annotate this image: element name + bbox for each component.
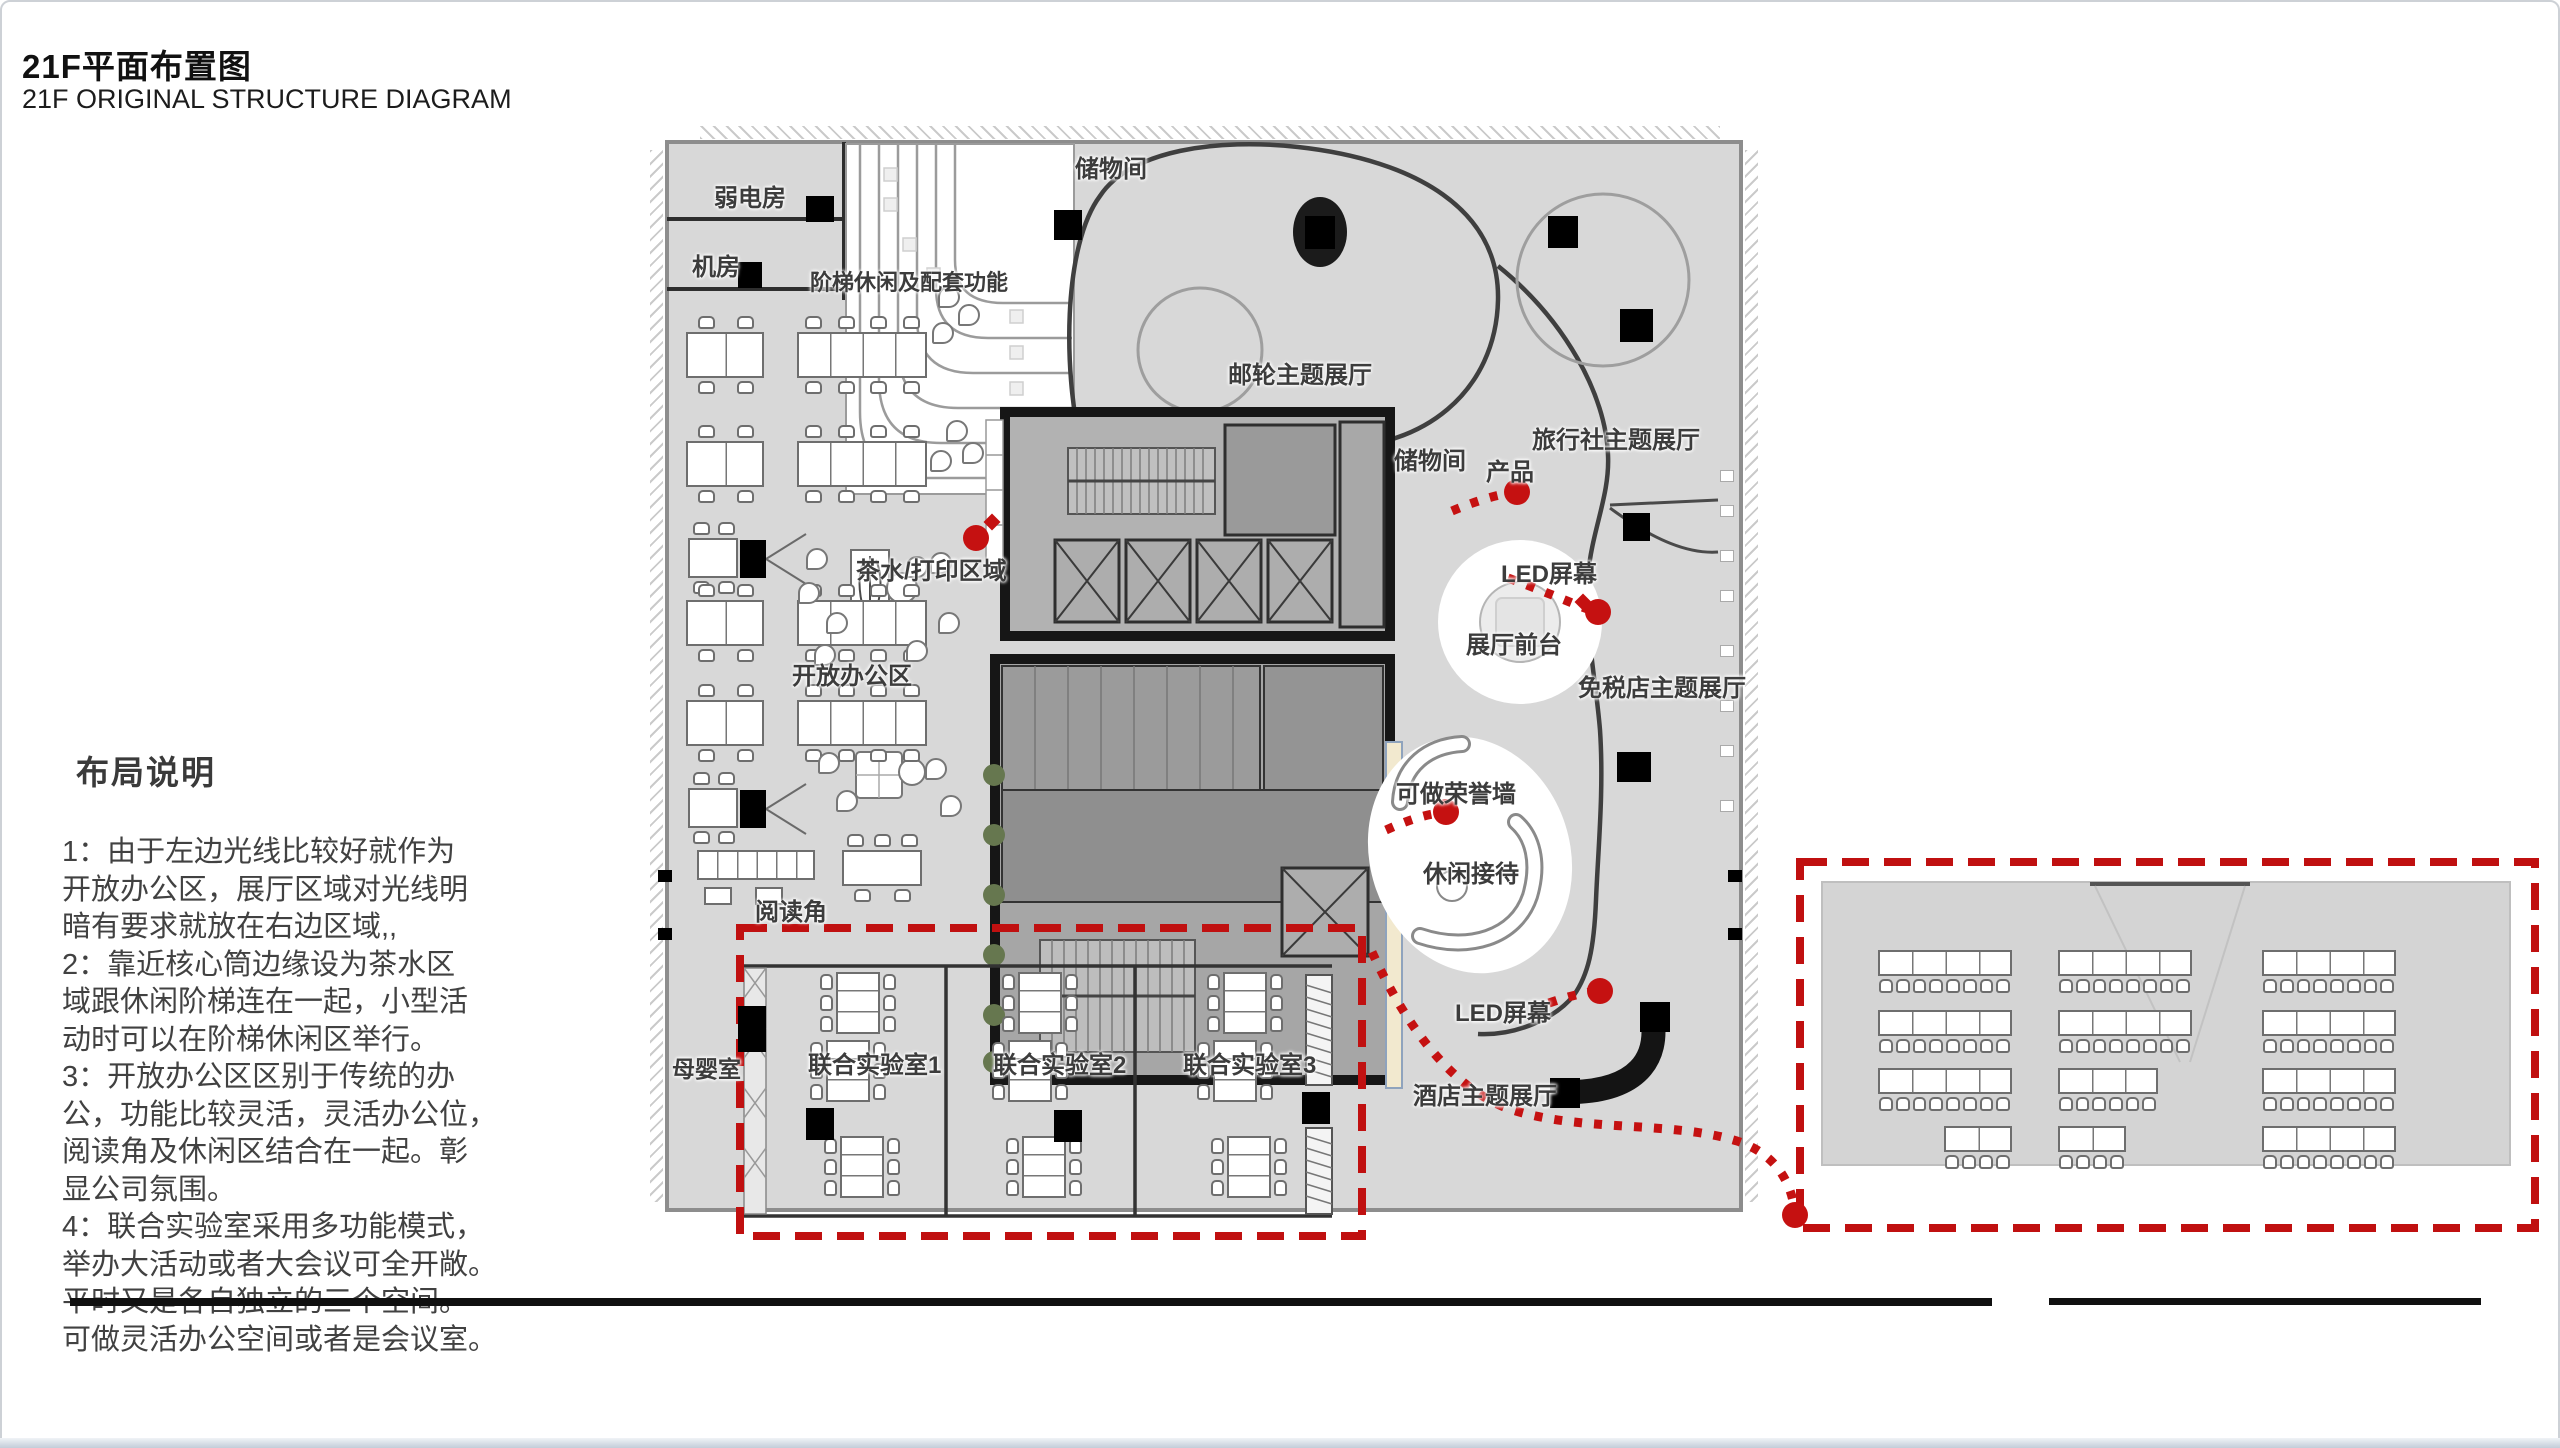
chair	[1929, 1039, 1943, 1053]
column-block	[1302, 1092, 1330, 1124]
column-block	[1054, 210, 1082, 240]
chair	[1980, 1097, 1994, 1111]
stool-seat	[962, 442, 984, 464]
chair	[1879, 1097, 1893, 1111]
chair	[2143, 979, 2157, 993]
zone-label-honor-wall: 可做荣誉墙	[1396, 774, 1516, 809]
notes-body: 1：由于左边光线比较好就作为开放办公区，展厅区域对光线明暗有要求就放在右边区域,…	[62, 834, 542, 1359]
notes-line: 3：开放办公区区别于传统的办	[62, 1059, 542, 1097]
chair	[2347, 1097, 2361, 1111]
zone-label-stair-leisure: 阶梯休闲及配套功能	[810, 265, 1008, 297]
notes-line: 开放办公区，展厅区域对光线明	[62, 872, 542, 910]
chair	[805, 490, 822, 503]
chair	[698, 749, 715, 762]
zone-label-storage-mid: 储物间	[1394, 441, 1466, 476]
chair	[2160, 1039, 2174, 1053]
office-desk	[842, 850, 922, 886]
chair	[2093, 1039, 2107, 1053]
chair	[2330, 1039, 2344, 1053]
column-block	[1728, 928, 1742, 940]
chair	[2059, 979, 2073, 993]
chair	[1002, 995, 1015, 1011]
chair	[883, 1016, 896, 1032]
column-block	[1728, 870, 1742, 882]
window-slit	[1720, 470, 1734, 482]
office-desk	[688, 788, 738, 828]
chair	[2364, 1097, 2378, 1111]
window-bottom-bar	[0, 1438, 2560, 1448]
notes-line: 举办大活动或者大会议可全开敞。	[62, 1247, 542, 1285]
stool-seat	[932, 322, 954, 344]
layout-notes: 布局说明 1：由于左边光线比较好就作为开放办公区，展厅区域对光线明暗有要求就放在…	[62, 746, 542, 1359]
chair	[1963, 979, 1977, 993]
chair	[693, 522, 710, 535]
chair	[894, 889, 911, 902]
chair	[2297, 1097, 2311, 1111]
window-slit	[1720, 645, 1734, 657]
office-desk	[686, 441, 764, 487]
chair	[838, 584, 855, 597]
stool-seat	[925, 758, 947, 780]
chair	[1996, 1155, 2010, 1169]
chair	[718, 831, 735, 844]
window-slit	[1720, 550, 1734, 562]
stool-seat	[818, 752, 840, 774]
classroom-table	[1878, 1068, 2012, 1094]
zone-label-hall-reception: 展厅前台	[1466, 625, 1562, 660]
stool-seat	[930, 450, 952, 472]
chair	[2347, 1155, 2361, 1169]
chair	[874, 834, 891, 847]
chair	[1946, 1097, 1960, 1111]
chair	[903, 381, 920, 394]
chair	[737, 316, 754, 329]
chair	[1913, 1097, 1927, 1111]
notes-heading: 布局说明	[76, 746, 542, 794]
classroom-table	[1944, 1126, 2012, 1152]
chair	[2109, 1097, 2123, 1111]
chair	[2176, 979, 2190, 993]
zone-label-weak-power-room: 弱电房	[714, 178, 786, 213]
stool-seat	[946, 420, 968, 442]
column-block	[738, 262, 762, 288]
office-desk	[797, 600, 927, 646]
chair	[1945, 1155, 1959, 1169]
chair	[737, 381, 754, 394]
chair	[854, 889, 871, 902]
chair	[718, 522, 735, 535]
red-marker-dot	[963, 525, 989, 551]
office-desk	[686, 700, 764, 746]
chair	[870, 425, 887, 438]
chair	[2263, 1039, 2277, 1053]
chair	[1980, 979, 1994, 993]
chair	[2176, 1039, 2190, 1053]
chair	[1065, 995, 1078, 1011]
office-desk	[686, 332, 764, 378]
chair	[1896, 1039, 1910, 1053]
chair	[1065, 974, 1078, 990]
column-block	[1054, 1110, 1082, 1142]
chair	[824, 1159, 837, 1175]
chair	[2313, 1097, 2327, 1111]
zone-label-leisure-reception: 休闲接待	[1423, 854, 1519, 889]
chair	[1962, 1155, 1976, 1169]
notes-line: 2：靠近核心筒边缘设为茶水区	[62, 947, 542, 985]
lab-table	[1223, 972, 1267, 1034]
office-desk	[797, 700, 927, 746]
lab-table	[1022, 1136, 1066, 1198]
chair	[737, 649, 754, 662]
chair	[1002, 1016, 1015, 1032]
chair	[1197, 1084, 1210, 1100]
chair	[2142, 1097, 2156, 1111]
notes-line: 暗有要求就放在右边区域,,	[62, 909, 542, 947]
notes-line: 阅读角及休闲区结合在一起。彰	[62, 1134, 542, 1172]
chair	[1207, 995, 1220, 1011]
chair	[820, 1016, 833, 1032]
chair	[698, 425, 715, 438]
chair	[1979, 1155, 1993, 1169]
office-desk	[697, 850, 815, 880]
window-slit	[1720, 745, 1734, 757]
chair	[2313, 979, 2327, 993]
chair	[737, 584, 754, 597]
notes-line: 4：联合实验室采用多功能模式，	[62, 1209, 542, 1247]
page-subtitle: 21F ORIGINAL STRUCTURE DIAGRAM	[22, 84, 512, 115]
stool-seat	[958, 304, 980, 326]
notes-line: 公，功能比较灵活，灵活办公位，	[62, 1097, 542, 1135]
chair	[2263, 979, 2277, 993]
chair	[903, 490, 920, 503]
chair	[718, 581, 735, 594]
chair	[903, 749, 920, 762]
footer-rule-left	[70, 1298, 1992, 1306]
chair	[1913, 1039, 1927, 1053]
chair	[1207, 974, 1220, 990]
chair	[1006, 1180, 1019, 1196]
stool-seat	[836, 790, 858, 812]
chair	[2092, 1097, 2106, 1111]
chair	[887, 1180, 900, 1196]
chair	[805, 425, 822, 438]
chair	[2313, 1039, 2327, 1053]
chair	[2263, 1097, 2277, 1111]
chair	[698, 649, 715, 662]
notes-line: 1：由于左边光线比较好就作为	[62, 834, 542, 872]
chair	[824, 1138, 837, 1154]
window-slit	[1720, 505, 1734, 517]
column-block	[1548, 216, 1578, 248]
chair	[2297, 1039, 2311, 1053]
chair	[698, 684, 715, 697]
zone-label-reading-corner: 阅读角	[755, 892, 827, 927]
chair	[2297, 979, 2311, 993]
chair	[2364, 979, 2378, 993]
chair	[2380, 1155, 2394, 1169]
chair	[2297, 1155, 2311, 1169]
lab-table	[1227, 1136, 1271, 1198]
chair	[847, 834, 864, 847]
zone-label-storage-top: 储物间	[1075, 149, 1147, 184]
chair	[2380, 1039, 2394, 1053]
zone-label-tea-print: 茶水/打印区域	[856, 551, 1007, 586]
chair	[1996, 1039, 2010, 1053]
office-desk	[686, 600, 764, 646]
chair	[737, 749, 754, 762]
chair	[2364, 1155, 2378, 1169]
stool-seat	[938, 612, 960, 634]
chair	[1270, 1016, 1283, 1032]
notes-line: 可做灵活办公空间或者是会议室。	[62, 1322, 542, 1360]
zone-label-product: 产品	[1486, 452, 1534, 487]
chair	[870, 490, 887, 503]
chair	[2380, 1097, 2394, 1111]
chair	[2280, 1097, 2294, 1111]
column-block	[658, 870, 672, 882]
chair	[2160, 979, 2174, 993]
chair	[737, 684, 754, 697]
chair	[737, 490, 754, 503]
notes-line: 域跟休闲阶梯连在一起，小型活	[62, 984, 542, 1022]
chair	[1069, 1180, 1082, 1196]
zone-label-machine-room: 机房	[692, 247, 740, 282]
chair	[1069, 1159, 1082, 1175]
zone-label-led-screen-2: LED屏幕	[1455, 993, 1551, 1028]
footer-rule-right	[2049, 1298, 2481, 1305]
zone-label-led-screen-1: LED屏幕	[1501, 554, 1597, 589]
chair	[1207, 1016, 1220, 1032]
chair	[1896, 1097, 1910, 1111]
window-slit	[1720, 800, 1734, 812]
zone-label-joint-lab-3: 联合实验室3	[1183, 1045, 1316, 1080]
office-desk	[688, 538, 738, 578]
hatch-right	[1745, 150, 1758, 1202]
chair	[1270, 995, 1283, 1011]
chair	[870, 749, 887, 762]
chair	[1879, 1039, 1893, 1053]
window-slit	[1720, 590, 1734, 602]
page-title: 21F平面布置图	[22, 40, 252, 88]
lab-table	[836, 972, 880, 1034]
chair	[873, 1084, 886, 1100]
red-marker-dot	[1782, 1202, 1808, 1228]
chair	[2059, 1097, 2073, 1111]
chair	[1211, 1138, 1224, 1154]
stool-seat	[806, 548, 828, 570]
chair	[2347, 1039, 2361, 1053]
chair	[2263, 1155, 2277, 1169]
chair	[1946, 979, 1960, 993]
chair	[2076, 979, 2090, 993]
chair	[1274, 1159, 1287, 1175]
chair	[2076, 1039, 2090, 1053]
chair	[698, 584, 715, 597]
chair	[1929, 1097, 1943, 1111]
chair	[2126, 1097, 2140, 1111]
chair	[903, 425, 920, 438]
chair	[805, 316, 822, 329]
chair	[1963, 1039, 1977, 1053]
chair	[838, 749, 855, 762]
chair	[693, 772, 710, 785]
classroom-table	[2262, 950, 2396, 976]
chair	[2380, 979, 2394, 993]
chair	[887, 1138, 900, 1154]
chair	[1006, 1159, 1019, 1175]
red-marker-dot	[1587, 978, 1613, 1004]
office-desk	[797, 332, 927, 378]
chair	[698, 381, 715, 394]
stool-seat	[798, 582, 820, 604]
chair	[2109, 979, 2123, 993]
zone-label-cruise-hall: 邮轮主题展厅	[1228, 355, 1372, 390]
chair	[2330, 979, 2344, 993]
display-board	[740, 790, 766, 828]
chair	[1006, 1138, 1019, 1154]
display-board	[740, 540, 766, 578]
chair	[887, 1159, 900, 1175]
chair	[1270, 974, 1283, 990]
chair	[810, 1084, 823, 1100]
chair	[2280, 1039, 2294, 1053]
chair	[2126, 979, 2140, 993]
chair	[2330, 1097, 2344, 1111]
chair	[2110, 1155, 2124, 1169]
column-block	[658, 928, 672, 940]
chair	[1980, 1039, 1994, 1053]
column-block	[1617, 752, 1651, 782]
chair	[838, 381, 855, 394]
chair	[698, 490, 715, 503]
stool-seat	[826, 612, 848, 634]
classroom-table	[2262, 1068, 2396, 1094]
chair	[1996, 1097, 2010, 1111]
chair	[838, 316, 855, 329]
chair	[2093, 1155, 2107, 1169]
chair	[1274, 1138, 1287, 1154]
chair	[2364, 1039, 2378, 1053]
classroom-table	[2058, 1126, 2126, 1152]
column-block	[738, 1006, 766, 1052]
office-desk	[797, 441, 927, 487]
chair	[805, 381, 822, 394]
column-block	[1640, 1002, 1670, 1032]
lab-table	[1018, 972, 1062, 1034]
chair	[1211, 1159, 1224, 1175]
chair	[718, 772, 735, 785]
chair	[2076, 1097, 2090, 1111]
chair	[693, 831, 710, 844]
chair	[903, 316, 920, 329]
column-block	[806, 1108, 834, 1140]
chair	[1929, 979, 1943, 993]
chair	[1002, 974, 1015, 990]
hatch-left	[650, 150, 663, 1202]
chair	[838, 490, 855, 503]
chair	[1996, 979, 2010, 993]
zone-label-duty-free-hall: 免税店主题展厅	[1578, 668, 1746, 703]
classroom-table	[2058, 950, 2192, 976]
chair	[1946, 1039, 1960, 1053]
chair	[1274, 1180, 1287, 1196]
chair	[698, 316, 715, 329]
chair	[2109, 1039, 2123, 1053]
classroom-table	[1878, 1010, 2012, 1036]
classroom-table	[1878, 950, 2012, 976]
chair	[992, 1084, 1005, 1100]
chair	[1260, 1084, 1273, 1100]
chair	[870, 381, 887, 394]
slide-stage: 21F平面布置图 21F ORIGINAL STRUCTURE DIAGRAM …	[0, 0, 2560, 1448]
chair	[2143, 1039, 2157, 1053]
column-block	[1620, 309, 1653, 342]
column-block	[806, 196, 834, 222]
chair	[838, 425, 855, 438]
chair	[2059, 1155, 2073, 1169]
chair	[737, 425, 754, 438]
chair	[1211, 1180, 1224, 1196]
hatch-top	[700, 126, 1720, 139]
chair	[1879, 979, 1893, 993]
chair	[2280, 1155, 2294, 1169]
chair	[2076, 1155, 2090, 1169]
chair	[1913, 979, 1927, 993]
stool-seat	[940, 795, 962, 817]
classroom-table	[2262, 1126, 2396, 1152]
chair	[2093, 979, 2107, 993]
chair	[1055, 1084, 1068, 1100]
chair	[820, 974, 833, 990]
chair	[1065, 1016, 1078, 1032]
chair	[883, 974, 896, 990]
classroom-table	[2262, 1010, 2396, 1036]
zone-label-joint-lab-2: 联合实验室2	[993, 1045, 1126, 1080]
chair	[2126, 1039, 2140, 1053]
zone-label-travel-hall: 旅行社主题展厅	[1532, 420, 1700, 455]
chair	[1963, 1097, 1977, 1111]
chair	[901, 834, 918, 847]
chair	[2330, 1155, 2344, 1169]
zone-label-nursing-room: 母婴室	[672, 1050, 741, 1084]
zone-label-hotel-hall: 酒店主题展厅	[1413, 1076, 1557, 1111]
chair	[2280, 979, 2294, 993]
zone-label-open-office: 开放办公区	[792, 656, 912, 691]
chair	[820, 995, 833, 1011]
zone-label-joint-lab-1: 联合实验室1	[808, 1045, 941, 1080]
chair	[824, 1180, 837, 1196]
classroom-table	[2058, 1010, 2192, 1036]
chair	[870, 316, 887, 329]
notes-line: 显公司氛围。	[62, 1172, 542, 1210]
chair	[2347, 979, 2361, 993]
chair	[883, 995, 896, 1011]
chair	[2313, 1155, 2327, 1169]
notes-line: 动时可以在阶梯休闲区举行。	[62, 1022, 542, 1060]
lab-table	[840, 1136, 884, 1198]
column-block	[1623, 513, 1650, 541]
chair	[1896, 979, 1910, 993]
classroom-table	[2058, 1068, 2158, 1094]
chair	[2059, 1039, 2073, 1053]
